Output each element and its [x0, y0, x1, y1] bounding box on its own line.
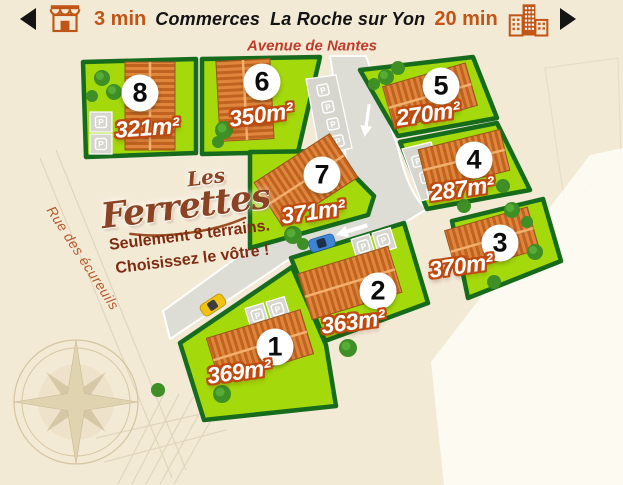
city-label: La Roche sur Yon	[270, 9, 425, 30]
street-label-avenue: Avenue de Nantes	[247, 38, 377, 55]
arrow-right-icon[interactable]	[560, 8, 576, 30]
arrow-left-icon[interactable]	[20, 8, 36, 30]
plot-7-badge[interactable]: 7	[304, 157, 341, 194]
shops-label: Commerces	[155, 9, 260, 30]
city-buildings-icon	[507, 0, 551, 38]
plot-6-badge[interactable]: 6	[244, 64, 281, 101]
travel-time-bar: 3 min Commerces La Roche sur Yon 20 min	[0, 0, 623, 38]
storefront-icon	[45, 3, 85, 35]
shops-time: 3 min	[94, 8, 146, 31]
plot-8-area: 321m²	[114, 112, 180, 143]
svg-text:P: P	[98, 117, 104, 127]
plot-8-badge[interactable]: 8	[122, 75, 159, 112]
svg-text:P: P	[98, 139, 104, 149]
city-time: 20 min	[434, 8, 497, 31]
compass-rose-icon	[14, 340, 138, 464]
site-plan: 3 min Commerces La Roche sur Yon 20 min	[0, 0, 623, 485]
